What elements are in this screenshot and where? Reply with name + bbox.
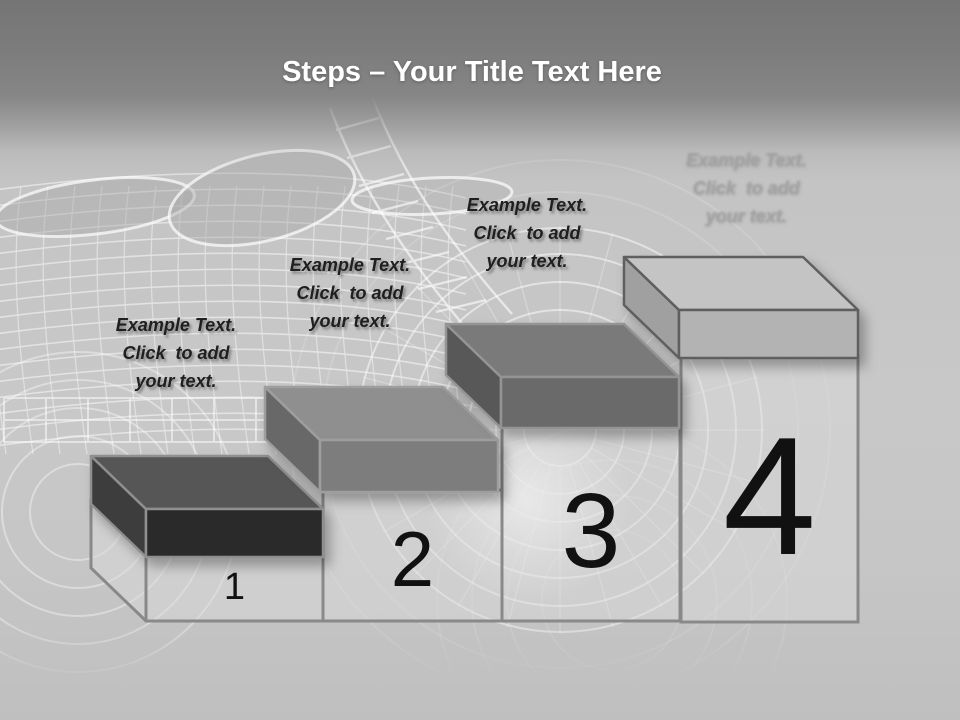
step-4-lid-front-face: [679, 310, 858, 358]
step-3-lid[interactable]: [446, 324, 679, 428]
slide-canvas: Steps – Your Title Text Here Example Tex…: [0, 0, 960, 720]
step-3-label[interactable]: Example Text. Click to add your text.: [427, 191, 627, 275]
step-4-label[interactable]: Example Text. Click to add your text.: [646, 146, 846, 230]
step-3-lid-front-face: [501, 377, 679, 428]
slide-title[interactable]: Steps – Your Title Text Here: [0, 56, 952, 89]
step-2-lid-front-face: [320, 440, 498, 492]
step-4-number[interactable]: 4: [681, 408, 858, 584]
step-2-lid[interactable]: [265, 387, 498, 492]
step-3-number[interactable]: 3: [502, 475, 680, 587]
step-4-lid[interactable]: [624, 257, 858, 358]
step-2-number[interactable]: 2: [323, 518, 502, 600]
step-1-lid-front-face: [146, 509, 323, 557]
title-keyword: Steps: [282, 56, 361, 88]
step-2-label[interactable]: Example Text. Click to add your text.: [250, 251, 450, 335]
step-1-number[interactable]: 1: [146, 565, 323, 609]
step-1-label[interactable]: Example Text. Click to add your text.: [76, 311, 276, 395]
title-rest: – Your Title Text Here: [361, 56, 662, 88]
